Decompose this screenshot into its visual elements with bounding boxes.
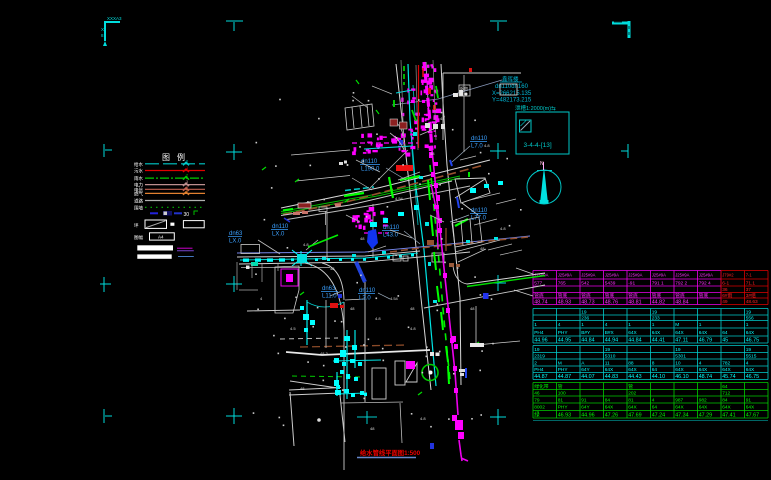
svg-text:J79#2: J79#2 — [722, 272, 734, 277]
svg-text:dn110: dn110 — [471, 208, 488, 214]
svg-text:4: 4 — [699, 360, 702, 366]
svg-text:44.41: 44.41 — [652, 338, 666, 344]
svg-text:1: 1 — [628, 322, 631, 328]
svg-text:绿化带: 绿化带 — [534, 383, 549, 390]
svg-text:PH4: PH4 — [534, 330, 544, 336]
svg-text:N: N — [540, 161, 544, 167]
svg-text:44.95: 44.95 — [558, 338, 572, 344]
svg-text:给水: 给水 — [134, 161, 143, 168]
svg-text:5310: 5310 — [605, 354, 616, 360]
svg-text:71.1: 71.1 — [746, 280, 756, 286]
svg-text:233: 233 — [652, 316, 660, 322]
svg-text:管底: 管底 — [652, 292, 662, 299]
svg-text:64X: 64X — [722, 367, 731, 373]
svg-text:4.54: 4.54 — [390, 296, 399, 301]
svg-text:48: 48 — [480, 246, 485, 251]
svg-text:管底: 管底 — [699, 292, 709, 299]
svg-text:管: 管 — [628, 383, 633, 390]
svg-text:J25#9A: J25#9A — [652, 272, 666, 277]
svg-text:L43.0: L43.0 — [383, 233, 399, 239]
svg-text:LX.0: LX.0 — [229, 239, 242, 245]
svg-text:图幅: 图幅 — [134, 234, 143, 241]
svg-text:4.8: 4.8 — [375, 316, 381, 321]
svg-text:管底: 管底 — [675, 292, 685, 299]
svg-text:4.8: 4.8 — [484, 143, 490, 148]
svg-text:管底: 管底 — [628, 292, 638, 299]
svg-text:-91: -91 — [628, 280, 635, 286]
svg-text:64X: 64X — [675, 330, 684, 336]
svg-text:79: 79 — [534, 397, 540, 403]
svg-text:J25#9A: J25#9A — [628, 272, 642, 277]
svg-text:44.94: 44.94 — [605, 338, 619, 344]
svg-text:542: 542 — [581, 280, 589, 286]
svg-text:987: 987 — [675, 397, 683, 403]
svg-text:44.83: 44.83 — [605, 374, 619, 380]
svg-text:19: 19 — [534, 347, 540, 353]
svg-text:M: M — [675, 322, 679, 328]
svg-text:A4: A4 — [158, 235, 164, 240]
svg-text:64X: 64X — [746, 367, 755, 373]
svg-text:燃气: 燃气 — [134, 190, 143, 197]
svg-text:PH4: PH4 — [534, 367, 544, 373]
svg-text:3#组: 3#组 — [746, 292, 756, 299]
svg-text:11: 11 — [605, 360, 610, 366]
svg-text:4: 4 — [652, 397, 655, 403]
svg-text:982: 982 — [699, 397, 707, 403]
svg-text:46.10: 46.10 — [675, 374, 689, 380]
svg-text:泄槽1:2000(m)⇆: 泄槽1:2000(m)⇆ — [515, 104, 556, 112]
svg-text:47.34: 47.34 — [675, 412, 689, 418]
svg-text:45: 45 — [722, 338, 728, 344]
svg-text:47.11: 47.11 — [675, 338, 688, 344]
svg-text:48: 48 — [360, 236, 365, 241]
svg-text:84: 84 — [605, 397, 611, 403]
svg-text:202: 202 — [628, 391, 636, 397]
svg-text:44.43: 44.43 — [628, 374, 642, 380]
svg-text:10: 10 — [675, 360, 681, 366]
svg-text:5301: 5301 — [675, 354, 686, 360]
svg-text:48: 48 — [370, 426, 375, 431]
svg-text:给水管线平面图1:500: 给水管线平面图1:500 — [360, 448, 421, 457]
svg-text:791 1: 791 1 — [652, 280, 664, 286]
svg-text:44.96: 44.96 — [534, 338, 548, 344]
svg-text:19: 19 — [746, 310, 752, 316]
svg-text:765: 765 — [558, 280, 566, 286]
svg-text:44.87: 44.87 — [534, 374, 548, 380]
svg-text:4.8: 4.8 — [420, 416, 426, 421]
svg-text:Y=482173.215: Y=482173.215 — [492, 98, 532, 104]
svg-text:4.8: 4.8 — [410, 326, 416, 331]
svg-text:L3.0: L3.0 — [359, 296, 371, 302]
svg-text:管底: 管底 — [605, 292, 615, 299]
svg-text:4.8: 4.8 — [500, 226, 506, 231]
svg-text:19: 19 — [581, 310, 587, 316]
svg-text:48: 48 — [470, 306, 475, 311]
svg-text:L11.0: L11.0 — [322, 294, 337, 300]
svg-text:2319: 2319 — [534, 354, 545, 360]
svg-text:64: 64 — [722, 330, 728, 336]
svg-text:46.93: 46.93 — [558, 412, 572, 418]
svg-text:44.96: 44.96 — [581, 412, 595, 418]
svg-text:46.79: 46.79 — [699, 338, 713, 344]
svg-text:4: 4 — [605, 322, 608, 328]
svg-text:712: 712 — [722, 391, 730, 397]
svg-text:道路: 道路 — [134, 198, 143, 205]
svg-text:雨水: 雨水 — [134, 175, 143, 182]
svg-text:管底: 管底 — [558, 292, 568, 299]
svg-text:管底: 管底 — [534, 292, 544, 299]
svg-text:1: 1 — [652, 322, 655, 328]
svg-text:6-1: 6-1 — [722, 280, 729, 286]
svg-text:64X: 64X — [699, 330, 708, 336]
svg-text:7-1: 7-1 — [746, 272, 753, 277]
svg-text:64Y: 64Y — [581, 367, 590, 373]
svg-text:8002: 8002 — [534, 405, 545, 411]
svg-text:48: 48 — [300, 386, 305, 391]
svg-text:64X: 64X — [746, 405, 755, 411]
svg-text:47.26: 47.26 — [605, 412, 619, 418]
svg-text:48: 48 — [350, 306, 355, 311]
svg-text:dn110: dn110 — [359, 288, 376, 294]
svg-text:dn110: dn110 — [272, 224, 289, 230]
svg-text:19: 19 — [675, 347, 681, 353]
svg-text:dn110: dn110 — [383, 225, 400, 231]
svg-text:44.84: 44.84 — [628, 338, 642, 344]
svg-text:48.93: 48.93 — [558, 299, 572, 305]
svg-text:44.84: 44.84 — [581, 338, 595, 344]
svg-text:64: 64 — [722, 384, 728, 390]
svg-text:1: 1 — [746, 322, 749, 328]
svg-text:4.54: 4.54 — [395, 196, 404, 201]
svg-text:46.75: 46.75 — [746, 374, 760, 380]
svg-text:L7.0: L7.0 — [471, 144, 483, 150]
svg-text:64X: 64X — [675, 405, 684, 411]
svg-text:绿: 绿 — [534, 410, 540, 418]
svg-text:J25#9A: J25#9A — [699, 272, 713, 277]
svg-text:44.07: 44.07 — [581, 374, 595, 380]
svg-text:36: 36 — [722, 287, 728, 293]
svg-text:48.3: 48.3 — [320, 351, 329, 356]
svg-text:J25#9A: J25#9A — [558, 272, 572, 277]
svg-text:B#Y: B#Y — [581, 330, 591, 336]
svg-text:64X: 64X — [675, 367, 684, 373]
svg-text:48.81: 48.81 — [628, 299, 642, 305]
svg-text:64Y: 64Y — [581, 405, 590, 411]
svg-text:64X: 64X — [605, 367, 614, 373]
svg-text:LX.0: LX.0 — [272, 232, 285, 238]
svg-text:91: 91 — [746, 397, 752, 403]
svg-text:48: 48 — [430, 151, 435, 156]
svg-text:1: 1 — [699, 322, 702, 328]
svg-text:792 2: 792 2 — [675, 280, 687, 286]
svg-text:1: 1 — [581, 322, 584, 328]
svg-text:64X: 64X — [628, 367, 637, 373]
svg-text:19: 19 — [652, 310, 658, 316]
svg-text:81: 81 — [628, 397, 634, 403]
svg-text:dn110: dn110 — [471, 136, 488, 142]
svg-text:236: 236 — [581, 316, 589, 322]
svg-text:坪: 坪 — [134, 222, 139, 229]
svg-text:5515: 5515 — [746, 354, 757, 360]
svg-text:64X: 64X — [605, 405, 614, 411]
svg-text:48: 48 — [330, 266, 335, 271]
svg-text:19: 19 — [605, 347, 611, 353]
svg-text:45.74: 45.74 — [722, 374, 736, 380]
svg-text:37: 37 — [746, 287, 752, 293]
svg-text:792 4: 792 4 — [699, 280, 711, 286]
svg-text:2: 2 — [534, 360, 537, 366]
svg-text:44.87: 44.87 — [558, 374, 572, 380]
svg-text:3-4-4-[13]: 3-4-4-[13] — [524, 142, 552, 149]
svg-text:64: 64 — [652, 367, 658, 373]
svg-text:4.8: 4.8 — [303, 242, 309, 247]
svg-text:图: 图 — [162, 153, 170, 162]
svg-text:dn63: dn63 — [322, 286, 336, 292]
svg-text:47.67: 47.67 — [746, 412, 760, 418]
svg-text:48.74: 48.74 — [699, 374, 713, 380]
svg-text:48.63: 48.63 — [746, 299, 758, 305]
svg-text:81: 81 — [558, 397, 564, 403]
svg-text:19: 19 — [746, 347, 752, 353]
svg-text:44.10: 44.10 — [652, 374, 666, 380]
svg-text:4: 4 — [558, 322, 561, 328]
svg-text:J25#9A: J25#9A — [675, 272, 689, 277]
svg-text:围墙: 围墙 — [134, 204, 143, 211]
svg-text:47.29: 47.29 — [699, 412, 713, 418]
svg-text:5439: 5439 — [605, 280, 616, 286]
svg-text:B#X: B#X — [605, 330, 615, 336]
svg-text:88: 88 — [628, 360, 634, 366]
svg-text:47.41: 47.41 — [722, 412, 736, 418]
svg-text:XXXA3: XXXA3 — [107, 16, 122, 21]
svg-text:dn63: dn63 — [229, 231, 243, 237]
svg-text:64X: 64X — [699, 367, 708, 373]
svg-text:X: X — [101, 27, 104, 32]
svg-text:48: 48 — [410, 306, 415, 311]
svg-text:6#雨: 6#雨 — [722, 293, 732, 299]
svg-text:556: 556 — [746, 316, 754, 322]
svg-text:84: 84 — [722, 397, 728, 403]
svg-text:49: 49 — [722, 299, 728, 305]
svg-text:PHY: PHY — [558, 330, 569, 336]
svg-text:4.5: 4.5 — [290, 326, 296, 331]
svg-text:782: 782 — [722, 360, 730, 366]
svg-text:91: 91 — [581, 397, 587, 403]
svg-text:48.76: 48.76 — [605, 299, 619, 305]
svg-text:4: 4 — [746, 360, 749, 366]
svg-text:J25#9A: J25#9A — [581, 272, 595, 277]
svg-text:64X: 64X — [746, 330, 755, 336]
svg-text:47.69: 47.69 — [628, 412, 642, 418]
svg-text:PHY: PHY — [558, 405, 569, 411]
svg-text:64X: 64X — [652, 330, 661, 336]
svg-text:J25#9A: J25#9A — [605, 272, 619, 277]
svg-text:L77.0: L77.0 — [471, 216, 487, 222]
svg-text:48.84: 48.84 — [675, 299, 689, 305]
svg-text:管底: 管底 — [581, 292, 591, 299]
svg-text:例: 例 — [177, 152, 185, 162]
svg-text:48.73: 48.73 — [581, 299, 595, 305]
svg-text:X=266215.135: X=266215.135 — [492, 91, 532, 97]
svg-text:46: 46 — [534, 391, 540, 397]
svg-text:46.75: 46.75 — [746, 338, 760, 344]
svg-text:M: M — [558, 360, 562, 366]
svg-text:64X: 64X — [628, 405, 637, 411]
svg-text:污水: 污水 — [134, 168, 143, 175]
svg-text:44.82: 44.82 — [652, 299, 666, 305]
svg-text:8: 8 — [652, 360, 655, 366]
svg-text:64X: 64X — [699, 405, 708, 411]
svg-text:64X: 64X — [722, 405, 731, 411]
svg-text:48.74: 48.74 — [534, 299, 548, 305]
svg-text:100: 100 — [558, 391, 566, 397]
svg-text:PHY: PHY — [558, 367, 569, 373]
svg-text:30: 30 — [184, 212, 190, 218]
svg-text:管: 管 — [558, 383, 563, 390]
svg-text:1: 1 — [534, 322, 537, 328]
svg-text:47.24: 47.24 — [652, 412, 666, 418]
svg-text:64X: 64X — [628, 330, 637, 336]
svg-text:64: 64 — [652, 405, 658, 411]
